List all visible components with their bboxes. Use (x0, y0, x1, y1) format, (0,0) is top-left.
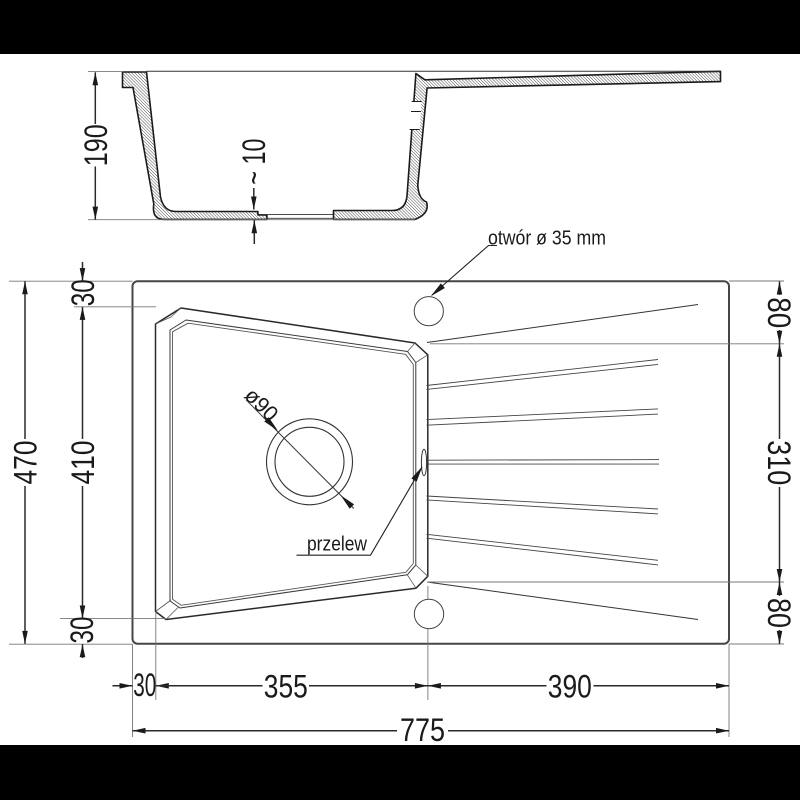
svg-text:470: 470 (8, 441, 44, 485)
svg-text:30: 30 (65, 279, 101, 306)
svg-text:otwór ø 35 mm: otwór ø 35 mm (488, 226, 606, 249)
svg-text:310: 310 (761, 440, 797, 485)
svg-text:775: 775 (400, 712, 445, 748)
svg-text:390: 390 (548, 668, 592, 704)
svg-text:przelew: przelew (307, 533, 367, 556)
svg-text:80: 80 (761, 297, 797, 328)
svg-text:80: 80 (761, 598, 797, 628)
svg-text:30: 30 (133, 667, 156, 703)
svg-text:190: 190 (78, 124, 114, 166)
svg-text:410: 410 (65, 441, 101, 485)
svg-text:30: 30 (64, 617, 100, 644)
svg-text:~ 10: ~ 10 (236, 139, 272, 185)
svg-text:355: 355 (264, 669, 308, 705)
